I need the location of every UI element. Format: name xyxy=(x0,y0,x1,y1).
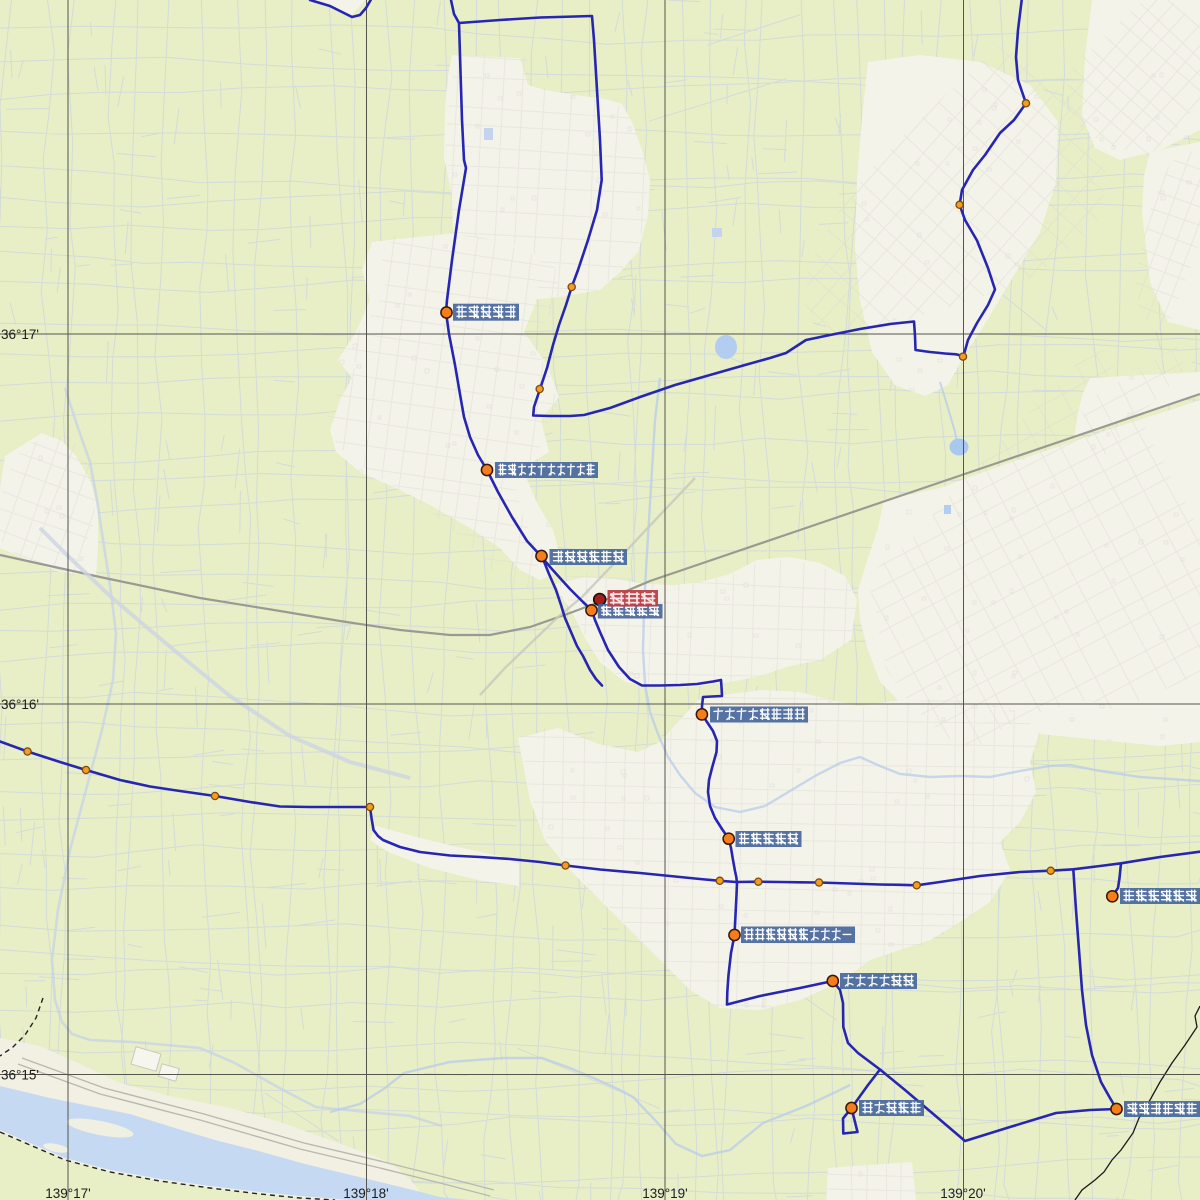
svg-text:36°15': 36°15' xyxy=(1,1068,39,1083)
svg-text:36°16': 36°16' xyxy=(1,697,39,712)
svg-text:139°18': 139°18' xyxy=(343,1186,389,1200)
svg-text:139°20': 139°20' xyxy=(940,1186,986,1200)
svg-text:139°19': 139°19' xyxy=(642,1186,688,1200)
svg-text:36°17': 36°17' xyxy=(1,327,39,342)
svg-text:139°17': 139°17' xyxy=(45,1186,91,1200)
